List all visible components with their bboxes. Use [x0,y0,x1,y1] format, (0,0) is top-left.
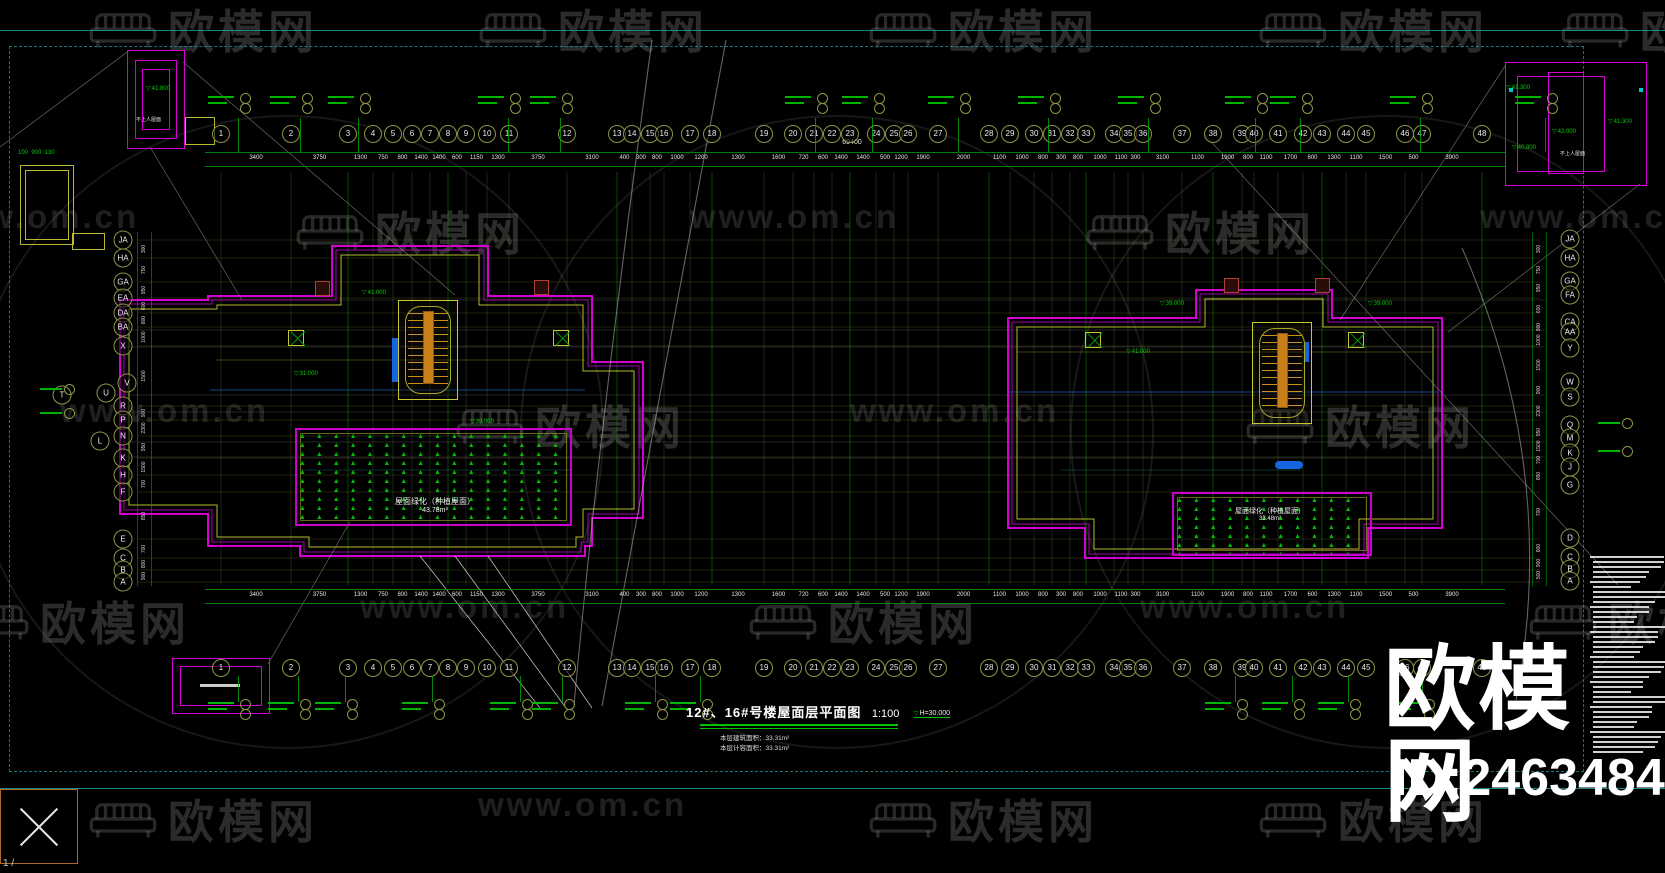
axis-bubble-bottom: 27 [929,659,947,677]
dimension-value-bottom: 1100 [1115,592,1128,598]
dimension-line-vertical [151,232,152,586]
axis-bubble-top: 27 [929,125,947,143]
dimension-value-bottom: 750 [378,592,388,598]
detail-parapet-sub-box [72,233,105,250]
detail-top-right-shaft [1548,72,1584,174]
axis-bubble-bottom: 7 [421,659,439,677]
area-line-2: 本层计容面积：33.31m² [720,742,1006,752]
stair-flight [423,311,434,384]
side-dimension-left: 700 [141,544,147,552]
axis-bubble-bottom: 41 [1269,659,1287,677]
note-text-row [1593,601,1655,603]
axis-bubble-bottom: 23 [841,659,859,677]
axis-bubble-bottom: 4 [364,659,382,677]
note-text-row [1593,636,1658,638]
dimension-value-top: 1000 [1093,155,1106,161]
left-green-roof-label: 屋面绿化（种植屋面） 43.78m² [355,496,515,514]
axis-bubble-bottom: 19 [755,659,773,677]
axis-bubble-bottom: 6 [403,659,421,677]
dimension-value-bottom: 300 [1056,592,1066,598]
axis-bubble-bottom: 38 [1204,659,1222,677]
non-access-roof-label: 不上人屋面 [1560,150,1585,157]
green-roof-label-text: 屋面绿化（种植屋面） [1205,506,1335,516]
dimension-value-bottom: 1150 [470,592,483,598]
flue-square [534,280,549,295]
dimension-value-top: 1300 [1327,155,1340,161]
dimension-value-bottom: 300 [636,592,646,598]
axis-bubble-top: 7 [421,125,439,143]
axis-bubble-top: 20 [784,125,802,143]
side-dimension-right: 1500 [1536,359,1542,370]
axis-bubble-left: JA [114,231,133,250]
side-dimension-right: 500 [1536,571,1542,579]
axis-bubble-right: J [1561,458,1580,477]
note-text-row [1593,616,1637,618]
side-dimension-left: 800 [141,560,147,568]
dimension-value-bottom: 600 [452,592,462,598]
elevation-label: ▽31.000 [294,370,318,377]
note-text-row [1593,641,1655,643]
elevation-label: ▽41.300 [1608,118,1632,125]
axis-bubble-bottom: 26 [899,659,917,677]
axis-bubble-bottom: 2 [282,659,300,677]
area-line-1: 本层建筑面积：33.31m² [720,732,1006,742]
axis-bubble-bottom: 30 [1025,659,1043,677]
side-dimension-left: 950 [141,443,147,451]
elevation-label: ▽42.000 [1552,128,1576,135]
dimension-value-top: 1100 [1260,155,1273,161]
dimension-value-bottom: 1900 [916,592,929,598]
axis-bubble-bottom: 21 [805,659,823,677]
axis-bubble-top: 6 [403,125,421,143]
axis-bubble-top: 41 [1269,125,1287,143]
dimension-value-top: 800 [1243,155,1253,161]
side-dimension-left: 300 [141,245,147,253]
axis-bubble-top: 2 [282,125,300,143]
axis-bubble-left: HA [114,249,133,268]
dimension-value-bottom: 1300 [354,592,367,598]
axis-bubble-top: 21 [805,125,823,143]
note-text-row [1593,621,1634,623]
dimension-value-top: 800 [397,155,407,161]
axis-bubble-top: 9 [457,125,475,143]
note-text-row [1593,566,1661,568]
axis-bubble-bottom: 31 [1043,659,1061,677]
dimension-value-bottom: 800 [397,592,407,598]
note-text-row [1593,591,1665,593]
axis-bubble-bottom: 20 [784,659,802,677]
dimension-value-top: 750 [378,155,388,161]
dimension-value-top: 1400 [414,155,427,161]
dimension-value-bottom: 1300 [731,592,744,598]
roof-drain-box [553,330,569,346]
dimension-line [205,589,1505,590]
dimension-value-bottom: 1400 [414,592,427,598]
dimension-value-top: 600 [818,155,828,161]
dimension-value-bottom: 1300 [1327,592,1340,598]
dimension-value-bottom: 800 [1038,592,1048,598]
dimension-value-top: 1300 [731,155,744,161]
axis-bubble-top: 22 [823,125,841,143]
axis-bubble-top: 38 [1204,125,1222,143]
flue-square [315,281,330,296]
dimension-value-bottom: 1900 [1221,592,1234,598]
dimension-value-top: 1200 [894,155,907,161]
left-stair-core [398,300,458,400]
axis-bubble-bottom: 42 [1294,659,1312,677]
dimension-value-bottom: 1300 [491,592,504,598]
side-dimension-right: 600 [1536,304,1542,312]
dimension-value-top: 500 [1408,155,1418,161]
axis-bubble-bottom: 37 [1173,659,1191,677]
dimension-value-top: 300 [1056,155,1066,161]
dimension-value-bottom: 1000 [1015,592,1028,598]
right-green-roof-label: 屋面绿化（种植屋面） 33.48m² [1205,506,1335,522]
dimension-value-top: 1300 [491,155,504,161]
dimension-value-top: 800 [1038,155,1048,161]
side-dimension-right: 1000 [1536,334,1542,345]
dimension-value-bottom: 720 [798,592,808,598]
elevation-label: ▽39.000 [1160,300,1184,307]
axis-bubble-top: 5 [384,125,402,143]
note-text-row [1593,611,1649,613]
dimension-value-top: 1700 [1284,155,1297,161]
axis-bubble-bottom: 36 [1134,659,1152,677]
note-text-row [1590,631,1658,633]
dimension-value-top: 3400 [249,155,262,161]
note-text-row [1590,556,1664,558]
side-dimension-right: 800 [1536,543,1542,551]
axis-bubble-top: 43 [1313,125,1331,143]
axis-bubble-left: L [91,432,110,451]
dimension-value-top: 1150 [470,155,483,161]
elevation-label: ▽39.000 [470,418,494,425]
axis-bubble-bottom: 16 [655,659,673,677]
side-dimension-left: 700 [141,479,147,487]
axis-bubble-top: 23 [841,125,859,143]
axis-bubble-top: 4 [364,125,382,143]
dimension-value-top: 300 [1130,155,1140,161]
axis-bubble-left: A [114,573,133,592]
dimension-value-bottom: 1600 [772,592,785,598]
height-mark: ▽H=30.000 [914,710,950,718]
axis-bubble-top: 42 [1294,125,1312,143]
dimension-line-vertical [1532,232,1533,586]
axis-bubble-right: JA [1561,230,1580,249]
axis-bubble-top: 14 [623,125,641,143]
axis-bubble-top: 30 [1025,125,1043,143]
axis-bubble-bottom: 45 [1357,659,1375,677]
axis-bubble-left: F [114,483,133,502]
cyan-node [1509,88,1513,92]
axis-bubble-bottom: 17 [681,659,699,677]
side-dimension-left: 800 [141,316,147,324]
side-dimension-right: 850 [1536,472,1542,480]
axis-bubble-top: 40 [1245,125,1263,143]
dimension-value-top: 3100 [585,155,598,161]
note-text-row [1590,606,1649,608]
dimension-value-bottom: 1100 [1350,592,1363,598]
roof-drain-box [1348,332,1364,348]
dimension-value-bottom: 1000 [670,592,683,598]
dimension-value-bottom: 400 [619,592,629,598]
axis-bubble-left: V [118,374,137,393]
dimension-value-bottom: 1200 [694,592,707,598]
blue-window-bar [1305,342,1309,362]
axis-bubble-bottom: 8 [439,659,457,677]
axis-bubble-bottom: 22 [823,659,841,677]
dimension-value-top: 300 [636,155,646,161]
dimension-value-top: 3900 [1445,155,1458,161]
axis-bubble-left: U [97,384,116,403]
dimension-line [205,152,1505,153]
elevation-label: ▽41.000 [362,289,386,296]
axis-bubble-right: HA [1561,249,1580,268]
dimension-value-top: 600 [1307,155,1317,161]
dimension-value-top: 1900 [916,155,929,161]
note-text-row [1593,586,1631,588]
detail-top-left-side-box [185,117,215,145]
axis-bubble-top: 47 [1413,125,1431,143]
dimension-value-bottom: 1400 [432,592,445,598]
dimension-value-top: 400 [619,155,629,161]
dimension-value-top: 500 [880,155,890,161]
cyan-node [1639,88,1643,92]
blue-window-bar [392,338,398,382]
dimension-value-top: 600 [452,155,462,161]
axis-bubble-top: 11 [500,125,518,143]
side-dimension-left: 600 [141,301,147,309]
side-dimension-right: 1500 [1536,440,1542,451]
axis-bubble-top: 31 [1043,125,1061,143]
dimension-value-top: 3750 [313,155,326,161]
elevation-label: ▽40.800 [1512,144,1536,151]
dimension-value-top: 800 [652,155,662,161]
dimension-value-bottom: 1100 [993,592,1006,598]
non-access-roof-label: 不上人屋面 [136,116,161,123]
watermark-id: ID:2463484 [1393,752,1665,804]
dimension-value-bottom: 1100 [1260,592,1273,598]
elevation-label: ▽41.000 [1126,348,1150,355]
dimension-line-vertical [1546,232,1547,586]
dimension-value-top: 800 [1073,155,1083,161]
axis-bubble-top: 29 [1001,125,1019,143]
axis-bubble-bottom: 1 [212,659,230,677]
dimension-value-bottom: 300 [1130,592,1140,598]
dimension-line-vertical [137,232,138,586]
dimension-value-bottom: 3400 [249,592,262,598]
green-roof-area-value: 33.48m² [1205,516,1335,522]
axis-bubble-top: 46 [1396,125,1414,143]
axis-bubble-left: N [114,427,133,446]
dimension-value-bottom: 1700 [1284,592,1297,598]
axis-bubble-bottom: 11 [500,659,518,677]
dimension-value-top: 1400 [432,155,445,161]
elevation-label: ▽41.800 [146,85,170,92]
side-dimension-left: 850 [141,511,147,519]
dimension-value-top: 1100 [1115,155,1128,161]
axis-bubble-top: 28 [980,125,998,143]
side-dimension-left: 750 [141,266,147,274]
side-dimension-right: 700 [1536,456,1542,464]
axis-bubble-top: 45 [1357,125,1375,143]
axis-bubble-right: FA [1561,286,1580,305]
side-dimension-left: 900 [141,409,147,417]
side-dimension-left: 1500 [141,370,147,381]
elevation-label: ▽39.000 [1368,300,1392,307]
detail-parapet-box-inner [25,170,69,240]
axis-bubble-bottom: 33 [1077,659,1095,677]
dimension-value-bottom: 800 [652,592,662,598]
axis-bubble-top: 44 [1337,125,1355,143]
note-text-row [1593,561,1664,563]
axis-bubble-bottom: 43 [1313,659,1331,677]
axis-bubble-top: 36 [1134,125,1152,143]
axis-bubble-top: 17 [681,125,699,143]
axis-bubble-bottom: 3 [339,659,357,677]
elevation-triangle-icon: ▽ [914,711,919,717]
dimension-value-bottom: 600 [818,592,828,598]
axis-bubble-bottom: 29 [1001,659,1019,677]
dimension-value-top: 1100 [993,155,1006,161]
stair-flight [1277,333,1288,408]
dimension-value-top: 3100 [1156,155,1169,161]
axis-bubble-bottom: 18 [703,659,721,677]
axis-bubble-bottom: 40 [1245,659,1263,677]
axis-bubble-top: 1 [212,125,230,143]
roof-drain-box [288,330,304,346]
axis-bubble-right: S [1561,388,1580,407]
axis-bubble-bottom: 14 [623,659,641,677]
axis-bubble-top: 26 [899,125,917,143]
axis-bubble-left: BA [114,318,133,337]
dimension-value-top: 1200 [694,155,707,161]
dimension-value-top: 1900 [1221,155,1234,161]
dimension-value-top: 1000 [1015,155,1028,161]
corner-x-marker[interactable] [0,789,78,864]
dimension-value-bottom: 1400 [834,592,847,598]
title-leader-lines [420,556,592,708]
dimension-value-bottom: 800 [1243,592,1253,598]
dimension-value-bottom: 3100 [585,592,598,598]
right-planted-roof-hatch: ▲ ▲ ▲ ▲ ▲ ▲ ▲ ▲ ▲ ▲ ▲ ▲ ▲ ▲ ▲ ▲ ▲ ▲ ▲ ▲ … [1172,492,1372,556]
axis-bubble-top: 16 [655,125,673,143]
axis-bubble-top: 10 [478,125,496,143]
dimension-value-bottom: 3750 [313,592,326,598]
dimension-value-bottom: 1100 [1191,592,1204,598]
axis-bubble-top: 37 [1173,125,1191,143]
detail-text-dash [200,684,240,687]
axis-bubble-top: 3 [339,125,357,143]
green-roof-area-value: 43.78m² [355,507,515,514]
axis-bubble-bottom: 12 [558,659,576,677]
page-indicator: 1 / [3,858,14,869]
dimension-value-bottom: 1200 [894,592,907,598]
axis-bubble-right: D [1561,529,1580,548]
note-text-row [1593,626,1665,628]
right-stair-core [1252,322,1312,424]
axis-bubble-right: G [1561,476,1580,495]
side-dimension-left: 900 [141,572,147,580]
side-dimension-right: 950 [1536,427,1542,435]
axis-bubble-top: 24 [867,125,885,143]
dimension-value-top: 1100 [1350,155,1363,161]
dimension-value-top: 720 [798,155,808,161]
side-dimension-right: 900 [1536,385,1542,393]
axis-bubble-bottom: 5 [384,659,402,677]
title-underline [700,724,898,729]
side-dimension-right: 900 [1536,559,1542,567]
axis-bubble-top: 18 [703,125,721,143]
dimension-value-bottom: 3100 [1156,592,1169,598]
axis-bubble-bottom: 28 [980,659,998,677]
side-dimension-left: 2300 [141,422,147,433]
dimension-value-top: 1000 [670,155,683,161]
detail-dims: 100 900 130 [18,150,55,156]
drawing-title-block: 12#、16#号楼屋面层平面图 1:100 ▽H=30.000 本层建筑面积：3… [686,702,1006,752]
side-dimension-right: 750 [1536,265,1542,273]
dimension-value-top: 3750 [531,155,544,161]
axis-bubble-top: 33 [1077,125,1095,143]
dimension-value-top: 2000 [957,155,970,161]
dimension-value-bottom: 1400 [856,592,869,598]
dimension-value-top: 1500 [1379,155,1392,161]
side-dimension-right: 950 [1536,284,1542,292]
leader-lines [0,50,1640,664]
axis-bubble-left: E [114,530,133,549]
side-dimension-right: 800 [1536,323,1542,331]
note-text-row [1590,581,1640,583]
dimension-value-top: 1400 [856,155,869,161]
drawing-title: 12#、16#号楼屋面层平面图 [686,705,861,720]
dimension-value-top: 1300 [354,155,367,161]
dimension-value-top: 1100 [1191,155,1204,161]
side-dimension-right: 2300 [1536,405,1542,416]
side-dimension-left: 1500 [141,461,147,472]
axis-bubble-left: X [114,337,133,356]
note-text-row [1593,596,1665,598]
dimension-value-bottom: 600 [1307,592,1317,598]
cad-drawing-canvas: 欧模网欧模网欧模网欧模网欧模网www.om.cn欧模网www.om.cn欧模网w… [0,0,1665,873]
axis-bubble-bottom: 10 [478,659,496,677]
axis-bubble-right: Y [1561,339,1580,358]
blue-tank [1275,461,1303,469]
axis-bubble-top: 19 [755,125,773,143]
dimension-value-top: 1600 [772,155,785,161]
note-text-row [1593,571,1649,573]
dimension-value-bottom: 3750 [531,592,544,598]
dimension-line [205,166,1505,167]
green-roof-label-text: 屋面绿化（种植屋面） [355,496,515,507]
dimension-value-bottom: 3900 [1445,592,1458,598]
axis-bubble-bottom: 44 [1337,659,1355,677]
side-dimension-right: 700 [1536,507,1542,515]
dimension-value-bottom: 800 [1073,592,1083,598]
axis-bubble-right: A [1561,572,1580,591]
dimension-value-bottom: 1500 [1379,592,1392,598]
dimension-value-bottom: 2000 [957,592,970,598]
dimension-value-bottom: 1000 [1093,592,1106,598]
roof-drain-box [1085,332,1101,348]
drawing-scale: 1:100 [872,708,900,720]
side-dimension-right: 300 [1536,244,1542,252]
dimension-value-bottom: 500 [880,592,890,598]
note-text-row [1593,576,1646,578]
flue-square [1224,278,1239,293]
axis-bubble-top: 48 [1473,125,1491,143]
side-dimension-left: 1000 [141,331,147,342]
axis-bubble-bottom: 9 [457,659,475,677]
